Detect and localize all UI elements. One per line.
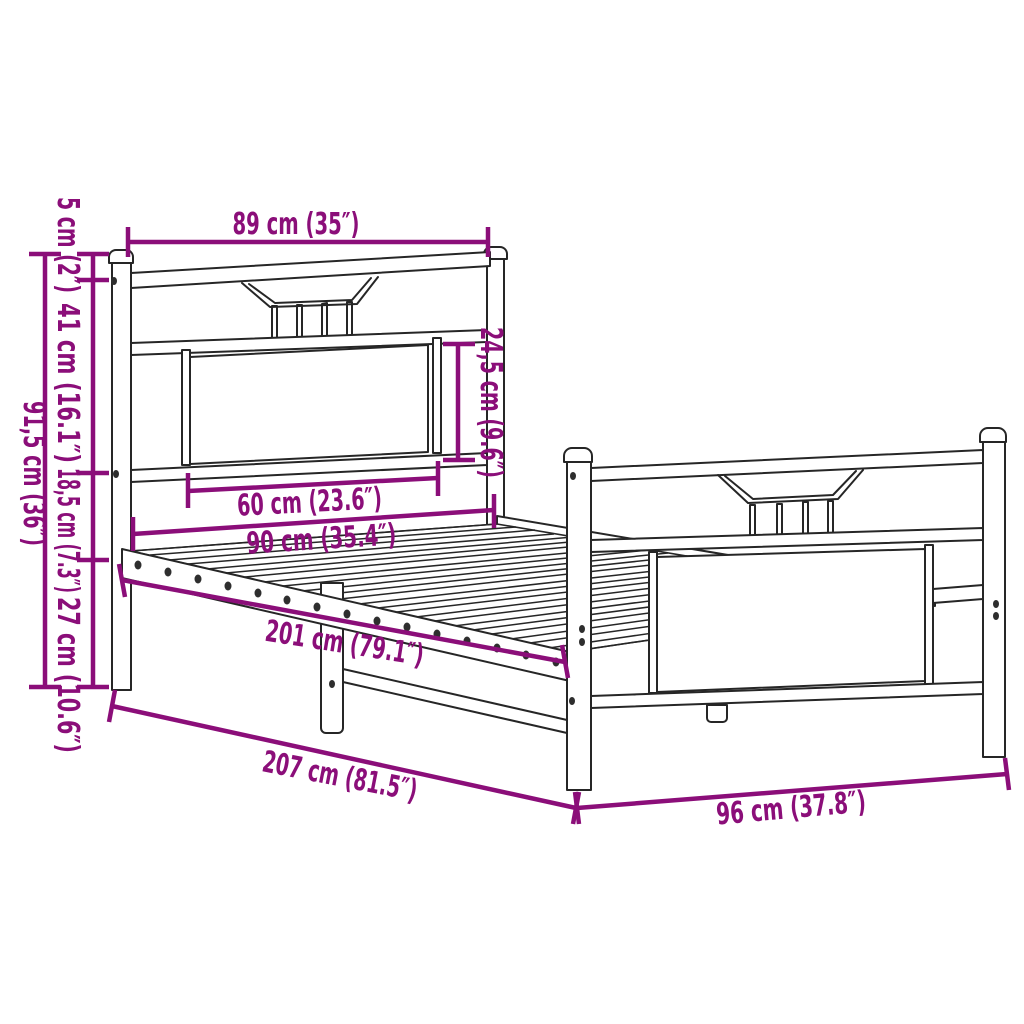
- center-leg-screw: [329, 680, 335, 688]
- footboard-bar-2: [777, 504, 782, 538]
- footboard-top-rail: [591, 450, 983, 481]
- headboard-screw-top: [111, 277, 117, 285]
- footboard-panel-right-strut: [925, 545, 933, 685]
- dim-label-foot-width: 96 cm (37.8″): [715, 785, 867, 833]
- footboard-left-post-cap: [564, 448, 592, 462]
- headboard-panel-right-strut: [433, 338, 441, 453]
- dimension-diagram: 89 cm (35″) 5 cm (2″) 41 cm (16.1″) 18,5…: [0, 0, 1024, 1024]
- headboard-trapezoid-inner: [249, 278, 371, 303]
- dim-label-total-height: 91,5 cm (36″): [16, 401, 51, 546]
- bed-frame-diagram-canvas: 89 cm (35″) 5 cm (2″) 41 cm (16.1″) 18,5…: [0, 0, 1024, 1024]
- headboard-bar-2: [297, 305, 302, 341]
- side-rail-pin: [933, 585, 983, 603]
- headboard-screw-bottom: [113, 470, 119, 478]
- headboard-bar-3: [322, 303, 327, 340]
- headboard-bar-1: [272, 306, 277, 342]
- headboard-panel: [190, 345, 428, 464]
- dim-label-cap-height: 5 cm (2″): [50, 197, 85, 293]
- footboard-right-post-cap: [980, 428, 1006, 442]
- footboard-panel-left-strut: [649, 552, 657, 693]
- headboard-panel-left-strut: [182, 350, 190, 465]
- center-beam: [343, 669, 567, 733]
- dim-label-upper-height: 41 cm (16.1″): [50, 303, 85, 463]
- dim-label-head-width: 89 cm (35″): [233, 207, 360, 242]
- dim-label-mid-height: 18,5 cm (7.3″): [50, 468, 85, 593]
- headboard-top-rail: [131, 252, 490, 288]
- footboard-center-foot: [707, 705, 727, 722]
- footboard-right-post: [983, 441, 1005, 757]
- dim-label-panel-height: 24,5 cm (9.6″): [473, 327, 508, 478]
- dim-label-leg-height: 27 cm (10.6″): [50, 597, 85, 753]
- footboard-bar-4: [828, 501, 833, 535]
- footboard-left-post: [567, 461, 591, 790]
- footboard-trapezoid-inner: [725, 471, 856, 499]
- footboard-bar-3: [803, 502, 808, 536]
- footboard-bar-1: [750, 505, 755, 539]
- headboard-bar-4: [347, 302, 352, 338]
- footboard-panel: [657, 549, 925, 692]
